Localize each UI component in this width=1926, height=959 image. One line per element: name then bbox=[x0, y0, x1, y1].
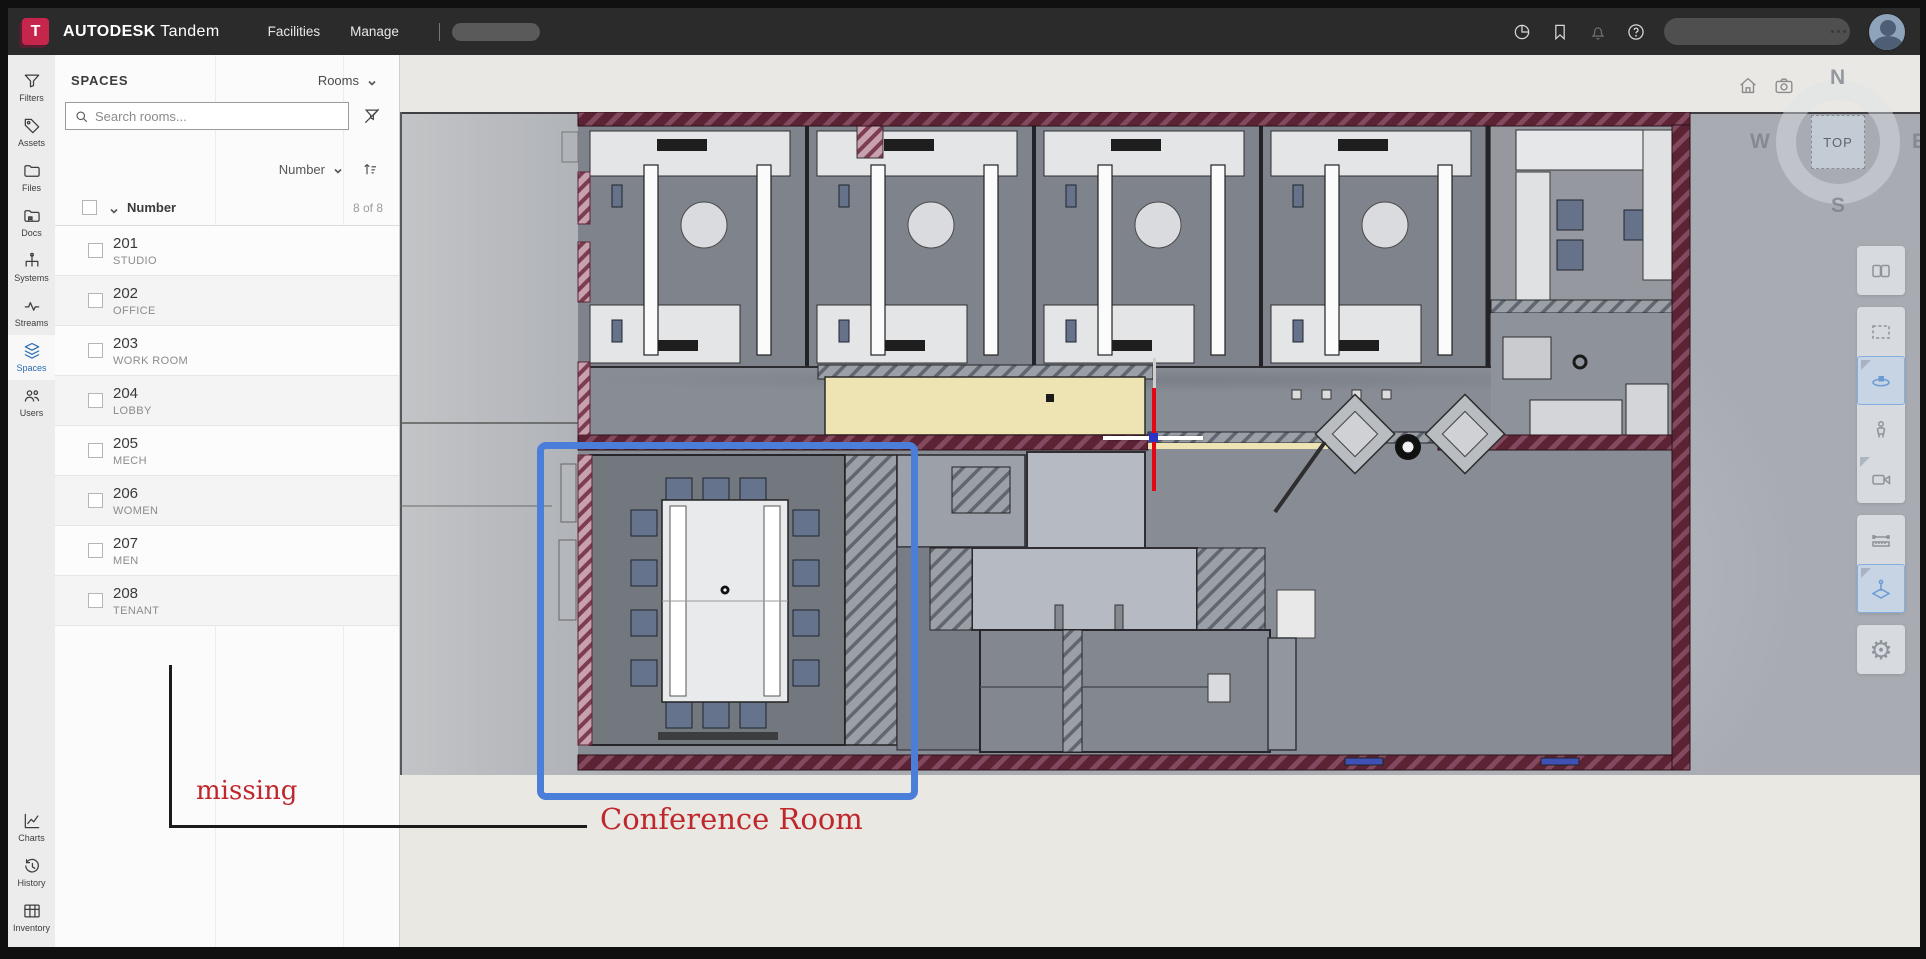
usage-pie-icon[interactable] bbox=[1512, 22, 1532, 42]
viewer-canvas[interactable]: N W E S TOP bbox=[400, 55, 1920, 947]
split-view-button[interactable] bbox=[1857, 246, 1905, 295]
user-avatar[interactable] bbox=[1868, 13, 1906, 51]
brand-title: AUTODESK Tandem bbox=[63, 23, 220, 41]
row-count: 8 of 8 bbox=[353, 201, 383, 215]
space-type-value: Rooms bbox=[318, 73, 359, 88]
row-checkbox[interactable] bbox=[88, 393, 103, 408]
room-number: 202 bbox=[113, 285, 156, 302]
sidebar-item-docs[interactable]: Docs bbox=[8, 200, 55, 245]
room-number: 205 bbox=[113, 435, 147, 452]
panel-title: SPACES bbox=[71, 73, 128, 88]
sidebar-item-charts[interactable]: Charts bbox=[8, 805, 55, 850]
sidebar-item-label: Filters bbox=[19, 93, 44, 103]
sidebar-item-streams[interactable]: Streams bbox=[8, 290, 55, 335]
chevron-down-icon bbox=[333, 164, 343, 174]
view-cube-top-face[interactable]: TOP bbox=[1811, 115, 1865, 169]
line-chart-icon bbox=[22, 811, 42, 831]
sidebar-item-label: Users bbox=[20, 408, 44, 418]
table-row-205[interactable]: 205MECH bbox=[55, 426, 399, 476]
left-icon-rail: Filters Assets Files Docs Systems Stream… bbox=[8, 55, 55, 947]
spaces-panel: SPACES Rooms Number bbox=[55, 55, 400, 947]
sidebar-item-label: Spaces bbox=[16, 363, 46, 373]
screenshot-camera-icon[interactable] bbox=[1771, 73, 1797, 99]
sort-column-dropdown[interactable]: Number bbox=[279, 162, 343, 177]
help-icon[interactable] bbox=[1626, 22, 1646, 42]
room-name: STUDIO bbox=[113, 255, 157, 267]
top-nav: Facilities Manage bbox=[268, 24, 399, 39]
row-checkbox[interactable] bbox=[88, 443, 103, 458]
funnel-icon bbox=[22, 71, 42, 91]
systems-tree-icon bbox=[22, 251, 42, 271]
pulse-icon bbox=[22, 296, 42, 316]
row-checkbox[interactable] bbox=[88, 493, 103, 508]
room-name: LOBBY bbox=[113, 405, 152, 417]
room-number: 206 bbox=[113, 485, 158, 502]
lobby-room-highlight bbox=[825, 377, 1145, 435]
list-header: Number 8 of 8 bbox=[55, 190, 399, 226]
sidebar-item-users[interactable]: Users bbox=[8, 380, 55, 425]
sidebar-item-label: History bbox=[17, 878, 45, 888]
room-name: TENANT bbox=[113, 605, 159, 617]
sidebar-item-filters[interactable]: Filters bbox=[8, 65, 55, 110]
clear-filter-icon[interactable] bbox=[359, 103, 385, 129]
row-checkbox[interactable] bbox=[88, 293, 103, 308]
brand-autodesk: AUTODESK bbox=[63, 23, 156, 40]
chevron-down-icon bbox=[367, 76, 377, 86]
home-view-icon[interactable] bbox=[1735, 73, 1761, 99]
room-number: 204 bbox=[113, 385, 152, 402]
brand-product: Tandem bbox=[160, 23, 219, 40]
sidebar-item-label: Assets bbox=[18, 138, 45, 148]
settings-gear-button[interactable]: ⚙ bbox=[1857, 625, 1905, 674]
viewer-lower-margin bbox=[400, 775, 1920, 947]
nav-divider bbox=[439, 23, 440, 41]
viewer-toolbar: ⚙ bbox=[1857, 246, 1905, 686]
top-bar: T AUTODESK Tandem Facilities Manage bbox=[8, 8, 1920, 55]
bookmark-icon[interactable] bbox=[1550, 22, 1570, 42]
camera-tool-button[interactable] bbox=[1857, 454, 1905, 503]
sidebar-item-label: Files bbox=[22, 183, 41, 193]
room-number: 207 bbox=[113, 535, 139, 552]
room-number: 203 bbox=[113, 335, 188, 352]
sort-column-value: Number bbox=[279, 162, 325, 177]
header-column-label[interactable]: Number bbox=[127, 200, 176, 215]
table-row-206[interactable]: 206WOMEN bbox=[55, 476, 399, 526]
sidebar-item-label: Streams bbox=[15, 318, 49, 328]
tandem-logo-icon[interactable]: T bbox=[22, 18, 49, 45]
chevron-down-icon[interactable] bbox=[109, 203, 119, 213]
nav-manage[interactable]: Manage bbox=[350, 24, 399, 39]
sidebar-item-spaces[interactable]: Spaces bbox=[8, 335, 55, 380]
facility-name-pill[interactable] bbox=[452, 23, 540, 41]
table-row-208[interactable]: 208TENANT bbox=[55, 576, 399, 626]
search-box[interactable] bbox=[65, 102, 349, 130]
section-tool-button[interactable] bbox=[1857, 564, 1905, 613]
window-select-button[interactable] bbox=[1857, 307, 1905, 356]
sidebar-item-assets[interactable]: Assets bbox=[8, 110, 55, 155]
room-name: MECH bbox=[113, 455, 147, 467]
table-grid-icon bbox=[22, 901, 42, 921]
sidebar-item-label: Charts bbox=[18, 833, 45, 843]
floor-plan-view[interactable] bbox=[400, 112, 1920, 775]
room-list: 201STUDIO 202OFFICE 203WORK ROOM 204LOBB… bbox=[55, 226, 399, 626]
table-row-203[interactable]: 203WORK ROOM bbox=[55, 326, 399, 376]
row-checkbox[interactable] bbox=[88, 593, 103, 608]
room-number: 201 bbox=[113, 235, 157, 252]
tag-icon bbox=[22, 116, 42, 136]
sidebar-item-label: Systems bbox=[14, 273, 49, 283]
room-number: 208 bbox=[113, 585, 159, 602]
history-clock-icon bbox=[22, 856, 42, 876]
table-row-202[interactable]: 202OFFICE bbox=[55, 276, 399, 326]
layers-icon bbox=[22, 341, 42, 361]
room-name: WORK ROOM bbox=[113, 355, 188, 367]
compass-north[interactable]: N bbox=[1830, 66, 1845, 90]
table-row-204[interactable]: 204LOBBY bbox=[55, 376, 399, 426]
sidebar-item-history[interactable]: History bbox=[8, 850, 55, 895]
orbit-tool-button[interactable] bbox=[1857, 356, 1905, 405]
select-all-checkbox[interactable] bbox=[82, 200, 97, 215]
sidebar-item-systems[interactable]: Systems bbox=[8, 245, 55, 290]
sidebar-item-label: Docs bbox=[21, 228, 42, 238]
sort-order-icon[interactable] bbox=[357, 156, 383, 182]
space-type-dropdown[interactable]: Rooms bbox=[318, 73, 377, 88]
table-row-207[interactable]: 207MEN bbox=[55, 526, 399, 576]
sidebar-item-inventory[interactable]: Inventory bbox=[8, 895, 55, 947]
first-person-button[interactable] bbox=[1857, 405, 1905, 454]
row-checkbox[interactable] bbox=[88, 343, 103, 358]
search-icon bbox=[74, 109, 89, 124]
docs-folder-icon bbox=[22, 206, 42, 226]
room-name: WOMEN bbox=[113, 505, 158, 517]
sidebar-item-files[interactable]: Files bbox=[8, 155, 55, 200]
room-name: MEN bbox=[113, 555, 139, 567]
table-row-201[interactable]: 201STUDIO bbox=[55, 226, 399, 276]
notifications-bell-icon[interactable] bbox=[1588, 22, 1608, 42]
search-input[interactable] bbox=[95, 109, 340, 124]
folder-icon bbox=[22, 161, 42, 181]
measure-tool-button[interactable] bbox=[1857, 515, 1905, 564]
global-search-input[interactable] bbox=[1664, 18, 1850, 45]
room-name: OFFICE bbox=[113, 305, 156, 317]
row-checkbox[interactable] bbox=[88, 543, 103, 558]
people-icon bbox=[22, 386, 42, 406]
app-window: T AUTODESK Tandem Facilities Manage Filt… bbox=[8, 8, 1920, 947]
nav-facilities[interactable]: Facilities bbox=[268, 24, 321, 39]
gear-icon: ⚙ bbox=[1869, 637, 1892, 663]
row-checkbox[interactable] bbox=[88, 243, 103, 258]
sidebar-item-label: Inventory bbox=[13, 923, 50, 933]
